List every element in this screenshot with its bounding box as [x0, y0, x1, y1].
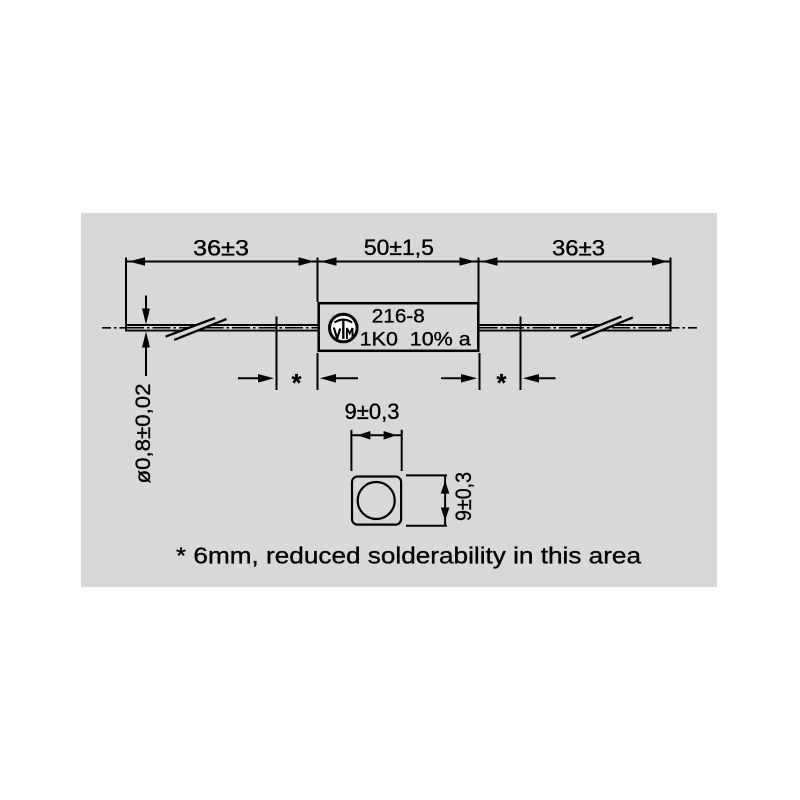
svg-text:50±1,5: 50±1,5 — [364, 235, 434, 260]
svg-text:216-8: 216-8 — [372, 306, 425, 328]
svg-text:* 6mm, reduced solderability i: * 6mm, reduced solderability in this are… — [176, 543, 642, 569]
svg-text:*: * — [497, 370, 507, 398]
svg-text:36±3: 36±3 — [552, 236, 605, 261]
svg-text:36±3: 36±3 — [193, 236, 249, 261]
svg-text:ø0,8±0,02: ø0,8±0,02 — [132, 384, 155, 484]
svg-text:1K0 10% a: 1K0 10% a — [360, 330, 471, 351]
svg-text:*: * — [292, 370, 302, 398]
svg-text:9±0,3: 9±0,3 — [345, 399, 400, 424]
svg-text:9±0,3: 9±0,3 — [451, 472, 476, 521]
